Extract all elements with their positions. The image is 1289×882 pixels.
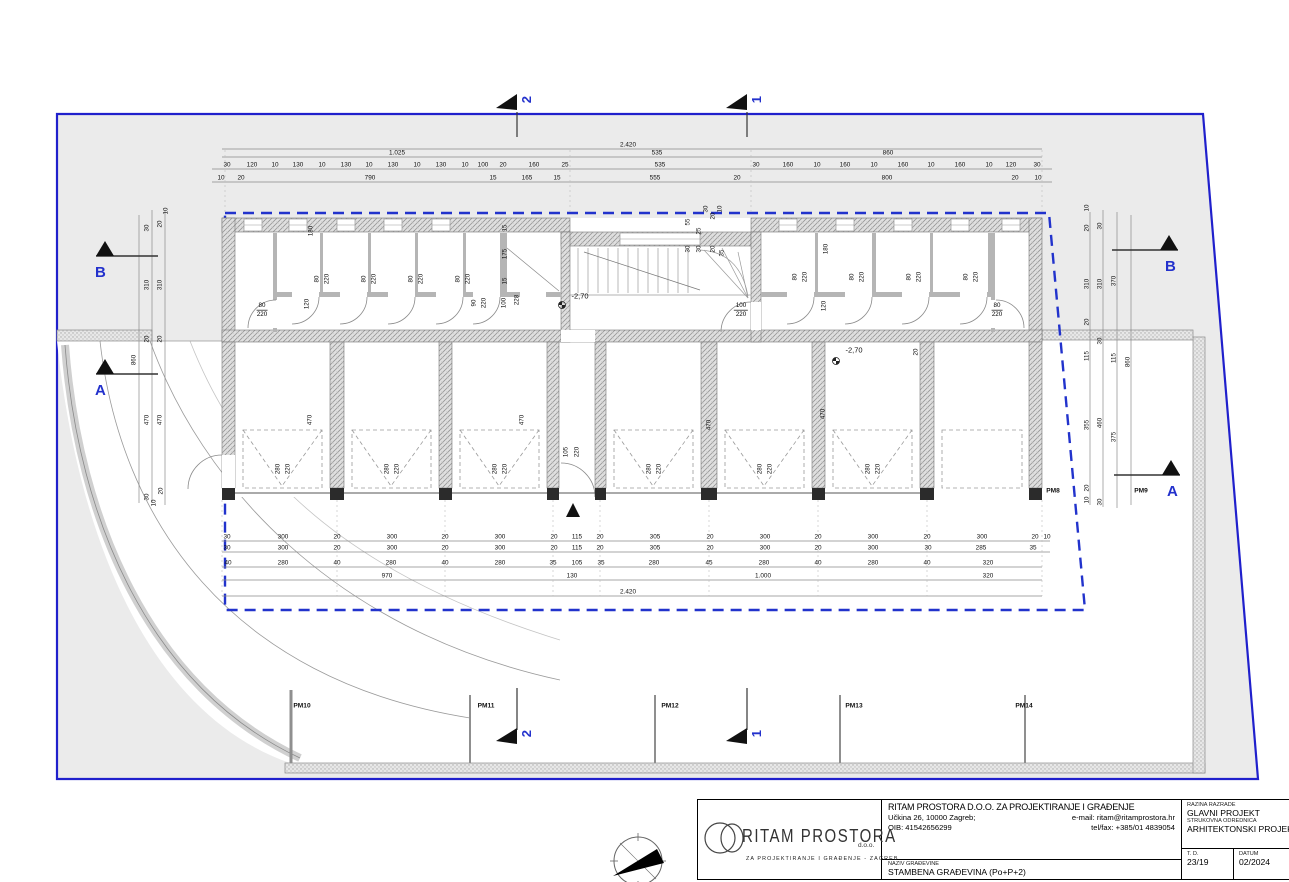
building-name-value: STAMBENA GRAĐEVINA (Po+P+2) [888, 867, 1175, 877]
section-marker-2-bottom: 2 [519, 730, 534, 737]
razina-value: GLAVNI PROJEKT [1187, 808, 1289, 818]
company-name: RITAM PROSTORA D.O.O. ZA PROJEKTIRANJE I… [888, 802, 1175, 812]
bottom-retaining-wall [285, 763, 1205, 773]
svg-text:A: A [1167, 483, 1178, 500]
left-wall-stub [57, 330, 152, 341]
section-marker-1-top: 1 [749, 96, 764, 103]
project-level-cell: RAZINA RAZRADE GLAVNI PROJEKT STRUKOVNA … [1182, 800, 1289, 848]
td-cell: T. D. 23/19 [1182, 849, 1234, 879]
company-telfax: tel/fax: +385/01 4839054 [1091, 823, 1175, 832]
company-oib: OIB: 41542656299 [888, 823, 952, 832]
floor-plan-drawing: 2 1 2 1 B A B A [0, 0, 1289, 882]
company-info: RITAM PROSTORA D.O.O. ZA PROJEKTIRANJE I… [882, 800, 1181, 859]
section-marker-1-bottom: 1 [749, 730, 764, 737]
struk-value: ARHITEKTONSKI PROJEKT [1187, 824, 1289, 834]
svg-text:A: A [95, 382, 106, 399]
date-cell: DATUM 02/2024 [1234, 849, 1286, 879]
building-name-cell: NAZIV GRAĐEVINE STAMBENA GRAĐEVINA (Po+P… [882, 859, 1181, 879]
section-marker-2-top: 2 [519, 96, 534, 103]
company-email: e-mail: ritam@ritamprostora.hr [1072, 813, 1175, 822]
yard-north-wall [1042, 330, 1193, 340]
company-address: Učkina 26, 10000 Zagreb; [888, 813, 975, 822]
svg-text:B: B [1165, 258, 1176, 275]
architectural-drawing-sheet: 2 1 2 1 B A B A [0, 0, 1289, 882]
svg-text:B: B [95, 264, 106, 281]
company-logo: RITAM PROSTORA d.o.o. ZA PROJEKTIRANJE I… [698, 800, 882, 879]
logo-subtitle: ZA PROJEKTIRANJE I GRAĐENJE - ZAGREB [746, 856, 899, 862]
title-block: RITAM PROSTORA d.o.o. ZA PROJEKTIRANJE I… [697, 799, 1289, 880]
logo-doo: d.o.o. [858, 842, 874, 849]
north-arrow-icon [610, 833, 666, 882]
right-retaining-wall [1193, 337, 1205, 773]
